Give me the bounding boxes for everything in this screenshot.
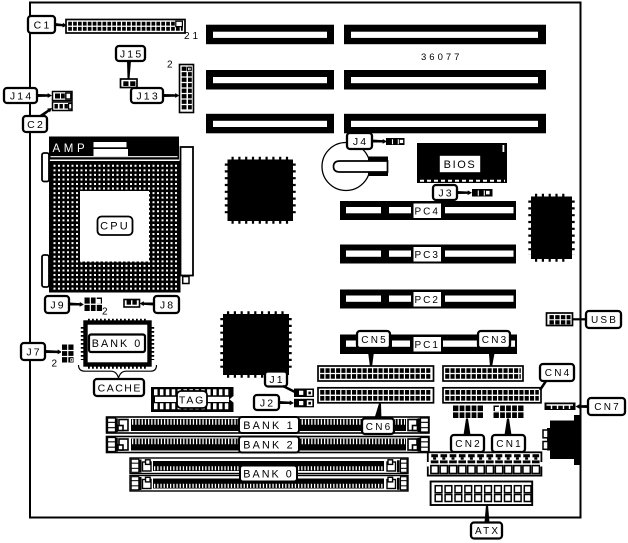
svg-text:AMP: AMP: [53, 143, 89, 155]
svg-text:PC3: PC3: [415, 250, 440, 261]
svg-text:J14: J14: [10, 90, 34, 102]
svg-text:J15: J15: [120, 48, 144, 60]
svg-text:CN6: CN6: [366, 422, 393, 433]
svg-text:C1: C1: [34, 19, 52, 31]
svg-text:J1: J1: [269, 374, 285, 386]
svg-text:2: 2: [167, 60, 173, 71]
svg-text:CN3: CN3: [482, 335, 509, 346]
svg-text:2: 2: [102, 307, 108, 318]
svg-text:2: 2: [52, 359, 58, 370]
svg-text:PC4: PC4: [415, 206, 440, 217]
svg-text:ATX: ATX: [475, 526, 500, 537]
svg-text:J2: J2: [260, 397, 276, 409]
svg-text:BANK 1: BANK 1: [243, 420, 295, 432]
svg-text:J7: J7: [26, 346, 42, 358]
svg-text:CN4: CN4: [545, 368, 572, 379]
svg-text:J3: J3: [438, 187, 454, 199]
svg-text:CN1: CN1: [496, 439, 523, 450]
svg-text:PC1: PC1: [415, 340, 440, 351]
svg-text:BANK 2: BANK 2: [243, 439, 295, 451]
svg-text:CN7: CN7: [594, 402, 621, 413]
svg-text:J8: J8: [160, 299, 176, 311]
svg-text:CPU: CPU: [100, 221, 130, 233]
svg-text:BANK 0: BANK 0: [243, 468, 293, 480]
svg-text:USB: USB: [591, 315, 618, 326]
svg-text:2: 2: [184, 31, 190, 42]
svg-text:BANK 0: BANK 0: [92, 338, 142, 350]
svg-text:BIOS: BIOS: [444, 159, 477, 171]
svg-text:J4: J4: [353, 136, 369, 148]
svg-text:CACHE: CACHE: [98, 382, 142, 394]
svg-text:36077: 36077: [421, 52, 462, 63]
svg-text:1: 1: [193, 31, 199, 42]
svg-text:J13: J13: [136, 90, 160, 102]
svg-text:J9: J9: [50, 299, 66, 311]
svg-text:C2: C2: [27, 119, 45, 131]
svg-text:TAG: TAG: [179, 394, 205, 406]
svg-text:CN2: CN2: [455, 439, 482, 450]
svg-text:PC2: PC2: [415, 295, 440, 306]
svg-text:CN5: CN5: [361, 335, 388, 346]
